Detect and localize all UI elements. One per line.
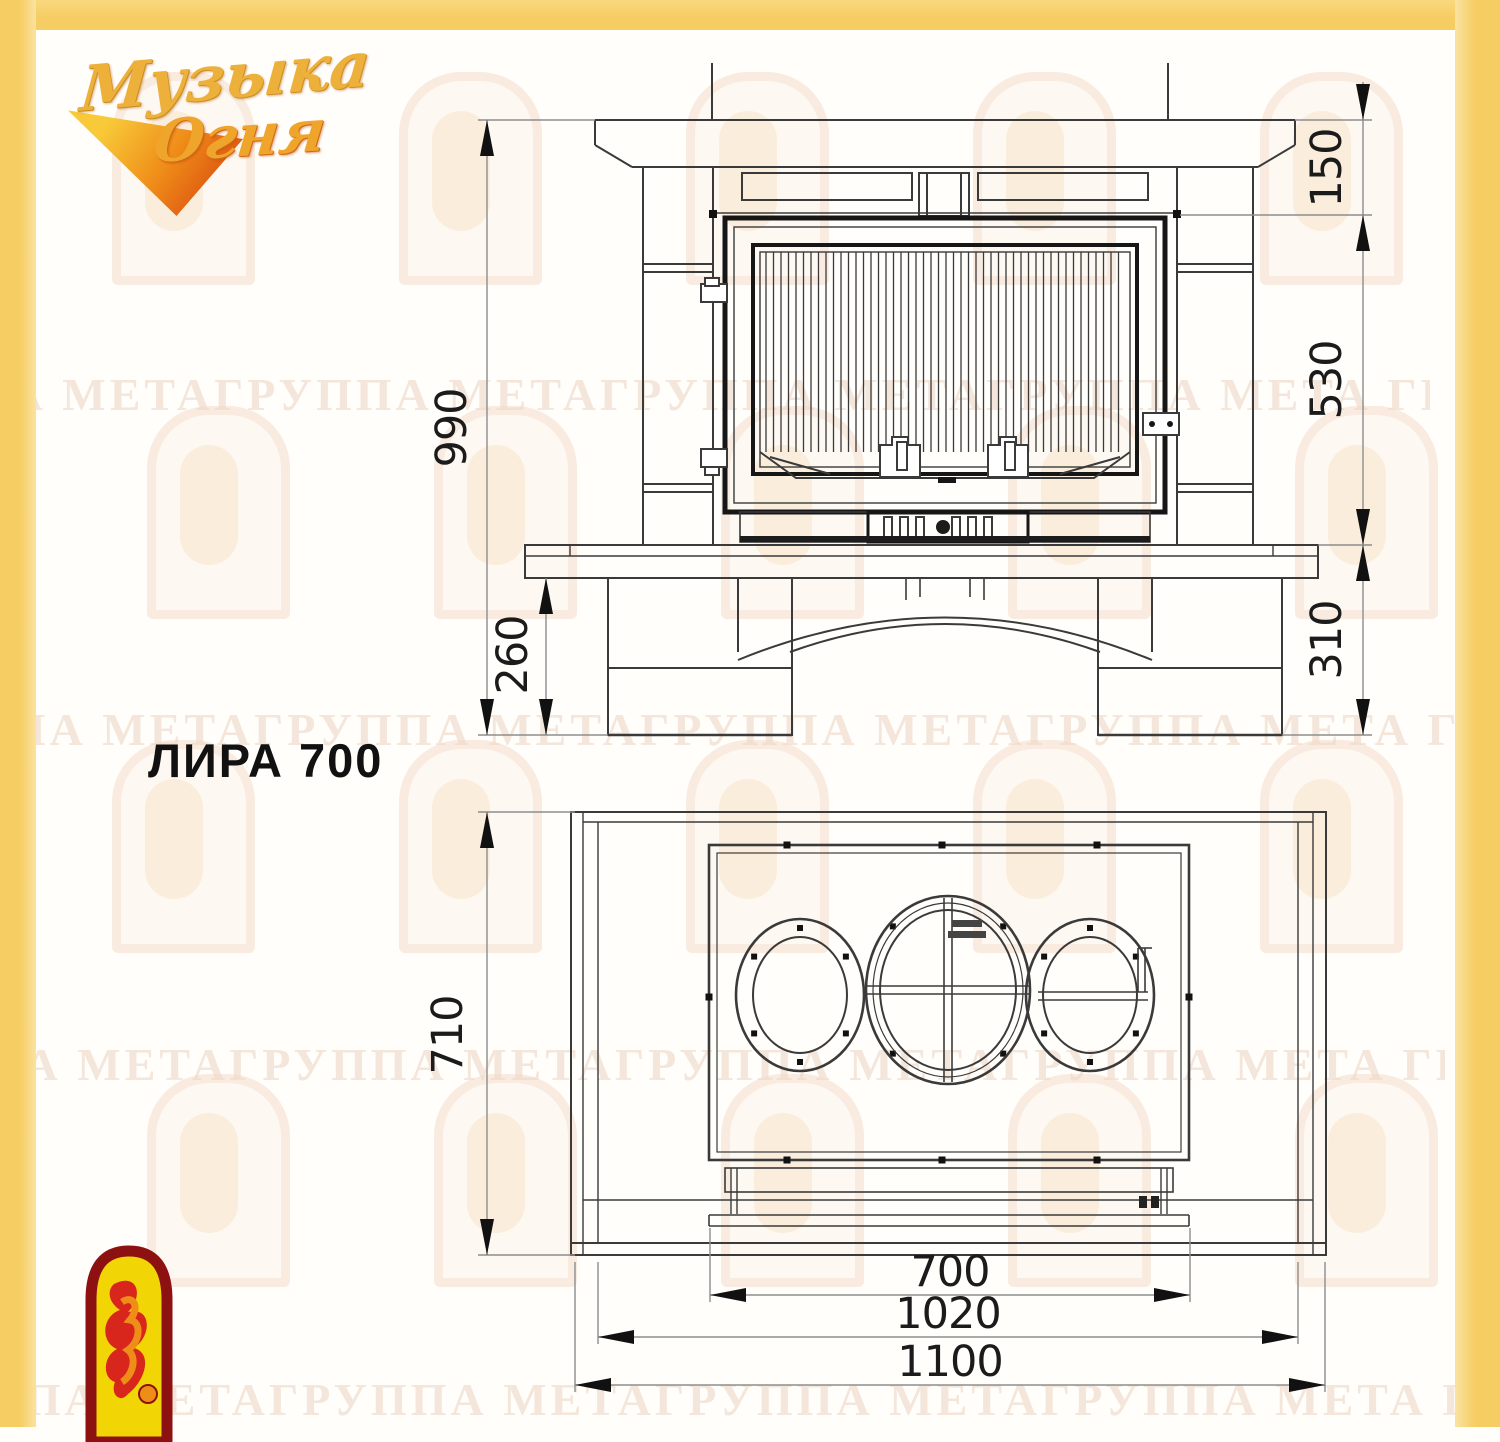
dim-mid-width: 1020 [895,1289,1000,1339]
dimension-lines [478,82,1372,1392]
dim-plinth-height: 260 [488,615,538,694]
dimension-arrows [480,84,1370,1392]
page: { "page": {"background": "#fffefb", "fra… [0,0,1500,1427]
firebox-door [701,218,1179,512]
frame-top-border [0,0,1500,30]
mantel-shelf [595,120,1295,167]
brand-logo: Музыка Огня [66,44,386,214]
dim-overall-width: 1100 [897,1337,1002,1387]
dimension-labels: 990 260 150 530 310 710 700 1020 1100 [423,128,1352,1387]
stamp-mark [948,931,986,938]
flue-circle-center [866,896,1030,1084]
dim-depth: 710 [423,995,473,1074]
stamp-mark [952,920,982,927]
frame-left-border [0,0,36,1427]
frieze-panels [742,173,1148,216]
dim-firebox-height: 530 [1302,340,1352,419]
base-legs [608,578,1282,735]
hearth-slab [525,545,1318,578]
plan-footprint [571,812,1326,1255]
plan-door-front [709,1168,1189,1226]
door-handle [1143,413,1179,435]
top-view [571,812,1326,1255]
dim-total-height: 990 [427,388,477,467]
flame-emblem [82,1242,176,1442]
model-title: ЛИРА 700 [148,733,383,788]
technical-drawing: 990 260 150 530 310 710 700 1020 1100 [0,0,1500,1427]
emblem-dot [139,1385,157,1403]
front-view [525,63,1318,735]
plan-tick-marks [706,842,1193,1164]
dim-top-band: 150 [1302,128,1352,207]
frame-right-border [1455,0,1500,1427]
chimney-pipes [712,63,1168,120]
door-grille-ribs [766,252,1119,452]
flue-circle-left [736,919,864,1071]
logo-word-2: Огня [151,96,329,177]
ash-vent [740,512,1150,542]
dim-base-height: 310 [1302,600,1352,679]
plan-firebox-unit [706,842,1193,1164]
flue-circle-right [1026,919,1154,1071]
